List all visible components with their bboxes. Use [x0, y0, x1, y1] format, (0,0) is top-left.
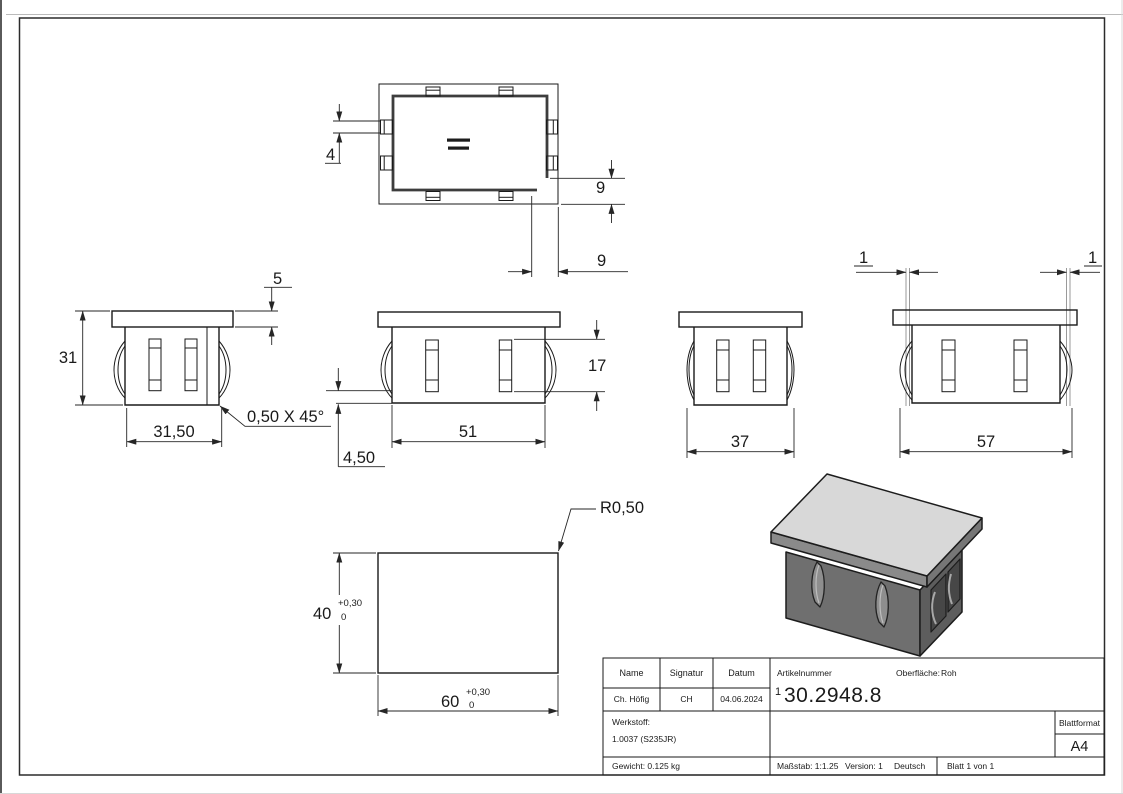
header-oberflaeche: Oberfläche:	[896, 668, 940, 678]
dim-wall-right: 1	[1040, 249, 1102, 272]
header-artikelnummer: Artikelnummer	[777, 668, 832, 678]
header-blattformat: Blattformat	[1059, 718, 1101, 728]
value-sprache: Deutsch	[894, 761, 925, 771]
dim-top-inset-bottom: 9	[508, 196, 628, 277]
drawing-sheet: 4 9 9	[0, 0, 1123, 794]
value-oberflaeche: Roh	[941, 668, 957, 678]
dim-label: 31	[59, 349, 77, 367]
front-view: 5 31 31,50 0,50 X 45°	[59, 270, 331, 447]
value-version: Version: 1	[845, 761, 883, 771]
dim-flange-height: 5	[235, 270, 292, 345]
dim-slot-height: 17	[514, 320, 606, 411]
top-view: 4 9 9	[325, 84, 628, 277]
dim-label: 4,50	[343, 449, 375, 467]
tolerance-lower: 0	[341, 612, 346, 623]
dim-label: 0,50 X 45°	[247, 408, 324, 426]
header-datum: Datum	[728, 668, 755, 678]
dim-top-tab-width: 4	[325, 104, 380, 164]
dim-top-inset-side: 9	[550, 160, 625, 223]
dim-label: 1	[1088, 249, 1097, 267]
value-signatur: CH	[680, 694, 692, 704]
value-werkstoff: 1.0037 (S235JR)	[612, 734, 676, 744]
dim-label: 51	[459, 423, 477, 441]
dim-label: 60	[441, 693, 459, 711]
dim-height-40: 40 +0,30 0	[313, 553, 376, 673]
dim-clip-offset: 4,50	[326, 368, 392, 467]
value-blattformat: A4	[1071, 739, 1089, 755]
dim-label: 5	[273, 270, 282, 288]
artikelnummer-prefix: 1	[775, 686, 781, 698]
dim-clip-span-37: 37	[687, 408, 794, 458]
drawing-frame	[20, 18, 1105, 775]
dim-label: 31,50	[153, 423, 194, 441]
dim-label: 9	[597, 252, 606, 270]
title-block: Name Signatur Datum Ch. Höfig CH 04.06.2…	[603, 658, 1104, 775]
long-side-view: 17 51 4,50	[326, 312, 606, 467]
clip-front-1	[812, 562, 824, 607]
value-massstab: Maßstab: 1:1.25	[777, 761, 839, 771]
dim-clip-span-57: 57	[900, 408, 1072, 458]
tolerance-upper: +0,30	[338, 598, 362, 609]
dim-label: R0,50	[600, 499, 644, 517]
dim-wall-left: 1	[854, 249, 938, 272]
artikelnummer-value: 30.2948.8	[784, 684, 882, 707]
dim-body-length: 51	[392, 405, 545, 448]
dim-label: 1	[859, 249, 868, 267]
dim-width-60: 60 +0,30 0	[378, 675, 558, 716]
dim-body-width: 31,50	[127, 408, 222, 447]
tolerance-upper: +0,30	[466, 687, 490, 698]
tolerance-lower: 0	[469, 700, 474, 711]
header-signatur: Signatur	[670, 668, 704, 678]
radius-callout: R0,50	[559, 499, 645, 551]
short-side-view: 37	[679, 312, 802, 458]
dim-total-height: 31	[59, 311, 123, 405]
isometric-view	[771, 474, 982, 656]
chamfer-callout: 0,50 X 45°	[220, 406, 331, 426]
header-werkstoff: Werkstoff:	[612, 717, 650, 727]
dim-label: 4	[326, 146, 335, 164]
dim-label: 40	[313, 605, 331, 623]
cad-drawing-canvas: 4 9 9	[0, 0, 1123, 794]
value-datum: 04.06.2024	[720, 694, 763, 704]
value-name: Ch. Höfig	[614, 694, 650, 704]
dim-label: 57	[977, 433, 995, 451]
dim-label: 17	[588, 357, 606, 375]
dim-label: 9	[596, 179, 605, 197]
value-gewicht: Gewicht: 0.125 kg	[612, 761, 680, 771]
value-blatt: Blatt 1 von 1	[947, 761, 995, 771]
clip-front-2	[876, 582, 888, 627]
header-name: Name	[619, 668, 643, 678]
outline-view: R0,50 40 +0,30 0 60 +0,30 0	[313, 499, 644, 716]
dim-label: 37	[731, 433, 749, 451]
wide-side-view: 1 1 57	[854, 249, 1102, 458]
embossed-marking	[447, 139, 470, 150]
